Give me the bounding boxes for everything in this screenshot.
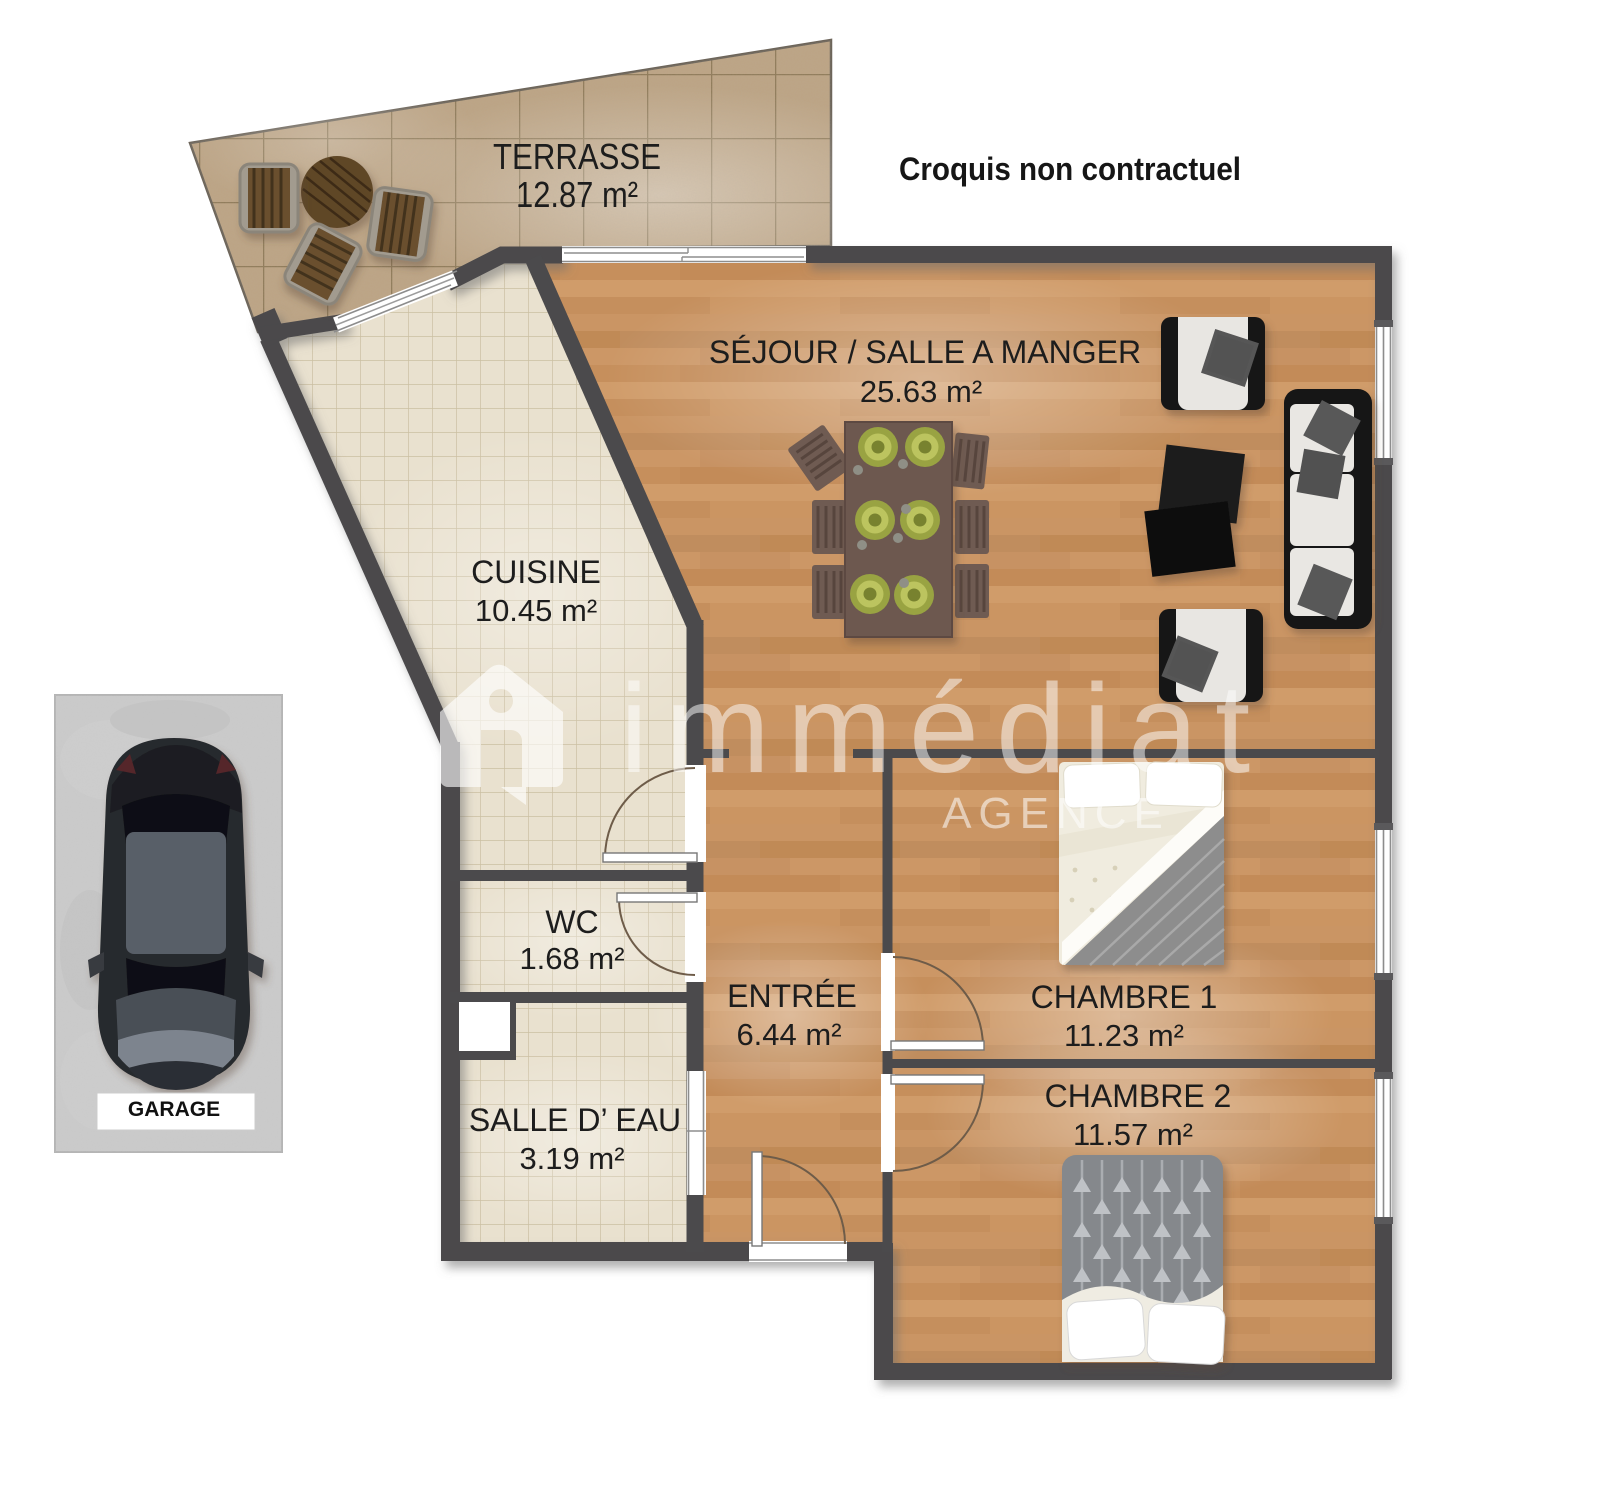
svg-text:1.68 m²: 1.68 m² — [519, 941, 624, 976]
svg-text:ENTRÉE: ENTRÉE — [727, 978, 857, 1014]
svg-text:11.23 m²: 11.23 m² — [1064, 1018, 1184, 1053]
svg-text:10.45 m²: 10.45 m² — [475, 593, 597, 628]
svg-text:SÉJOUR / SALLE A MANGER: SÉJOUR / SALLE A MANGER — [709, 334, 1141, 370]
svg-text:CUISINE: CUISINE — [471, 554, 601, 590]
svg-text:11.57 m²: 11.57 m² — [1073, 1117, 1193, 1152]
svg-text:WC: WC — [545, 904, 598, 940]
svg-text:25.63 m²: 25.63 m² — [860, 374, 982, 409]
svg-text:TERRASSE: TERRASSE — [493, 136, 661, 177]
svg-text:3.19 m²: 3.19 m² — [519, 1141, 624, 1176]
svg-text:CHAMBRE 1: CHAMBRE 1 — [1031, 979, 1218, 1015]
svg-text:6.44 m²: 6.44 m² — [736, 1017, 841, 1052]
svg-text:GARAGE: GARAGE — [128, 1098, 220, 1121]
svg-text:12.87 m²: 12.87 m² — [516, 174, 638, 215]
svg-text:immédiat: immédiat — [620, 658, 1267, 799]
svg-text:Croquis non contractuel: Croquis non contractuel — [899, 151, 1241, 187]
svg-text:CHAMBRE 2: CHAMBRE 2 — [1045, 1078, 1232, 1114]
svg-text:AGENCE: AGENCE — [942, 789, 1170, 838]
svg-text:SALLE D’ EAU: SALLE D’ EAU — [469, 1102, 681, 1138]
